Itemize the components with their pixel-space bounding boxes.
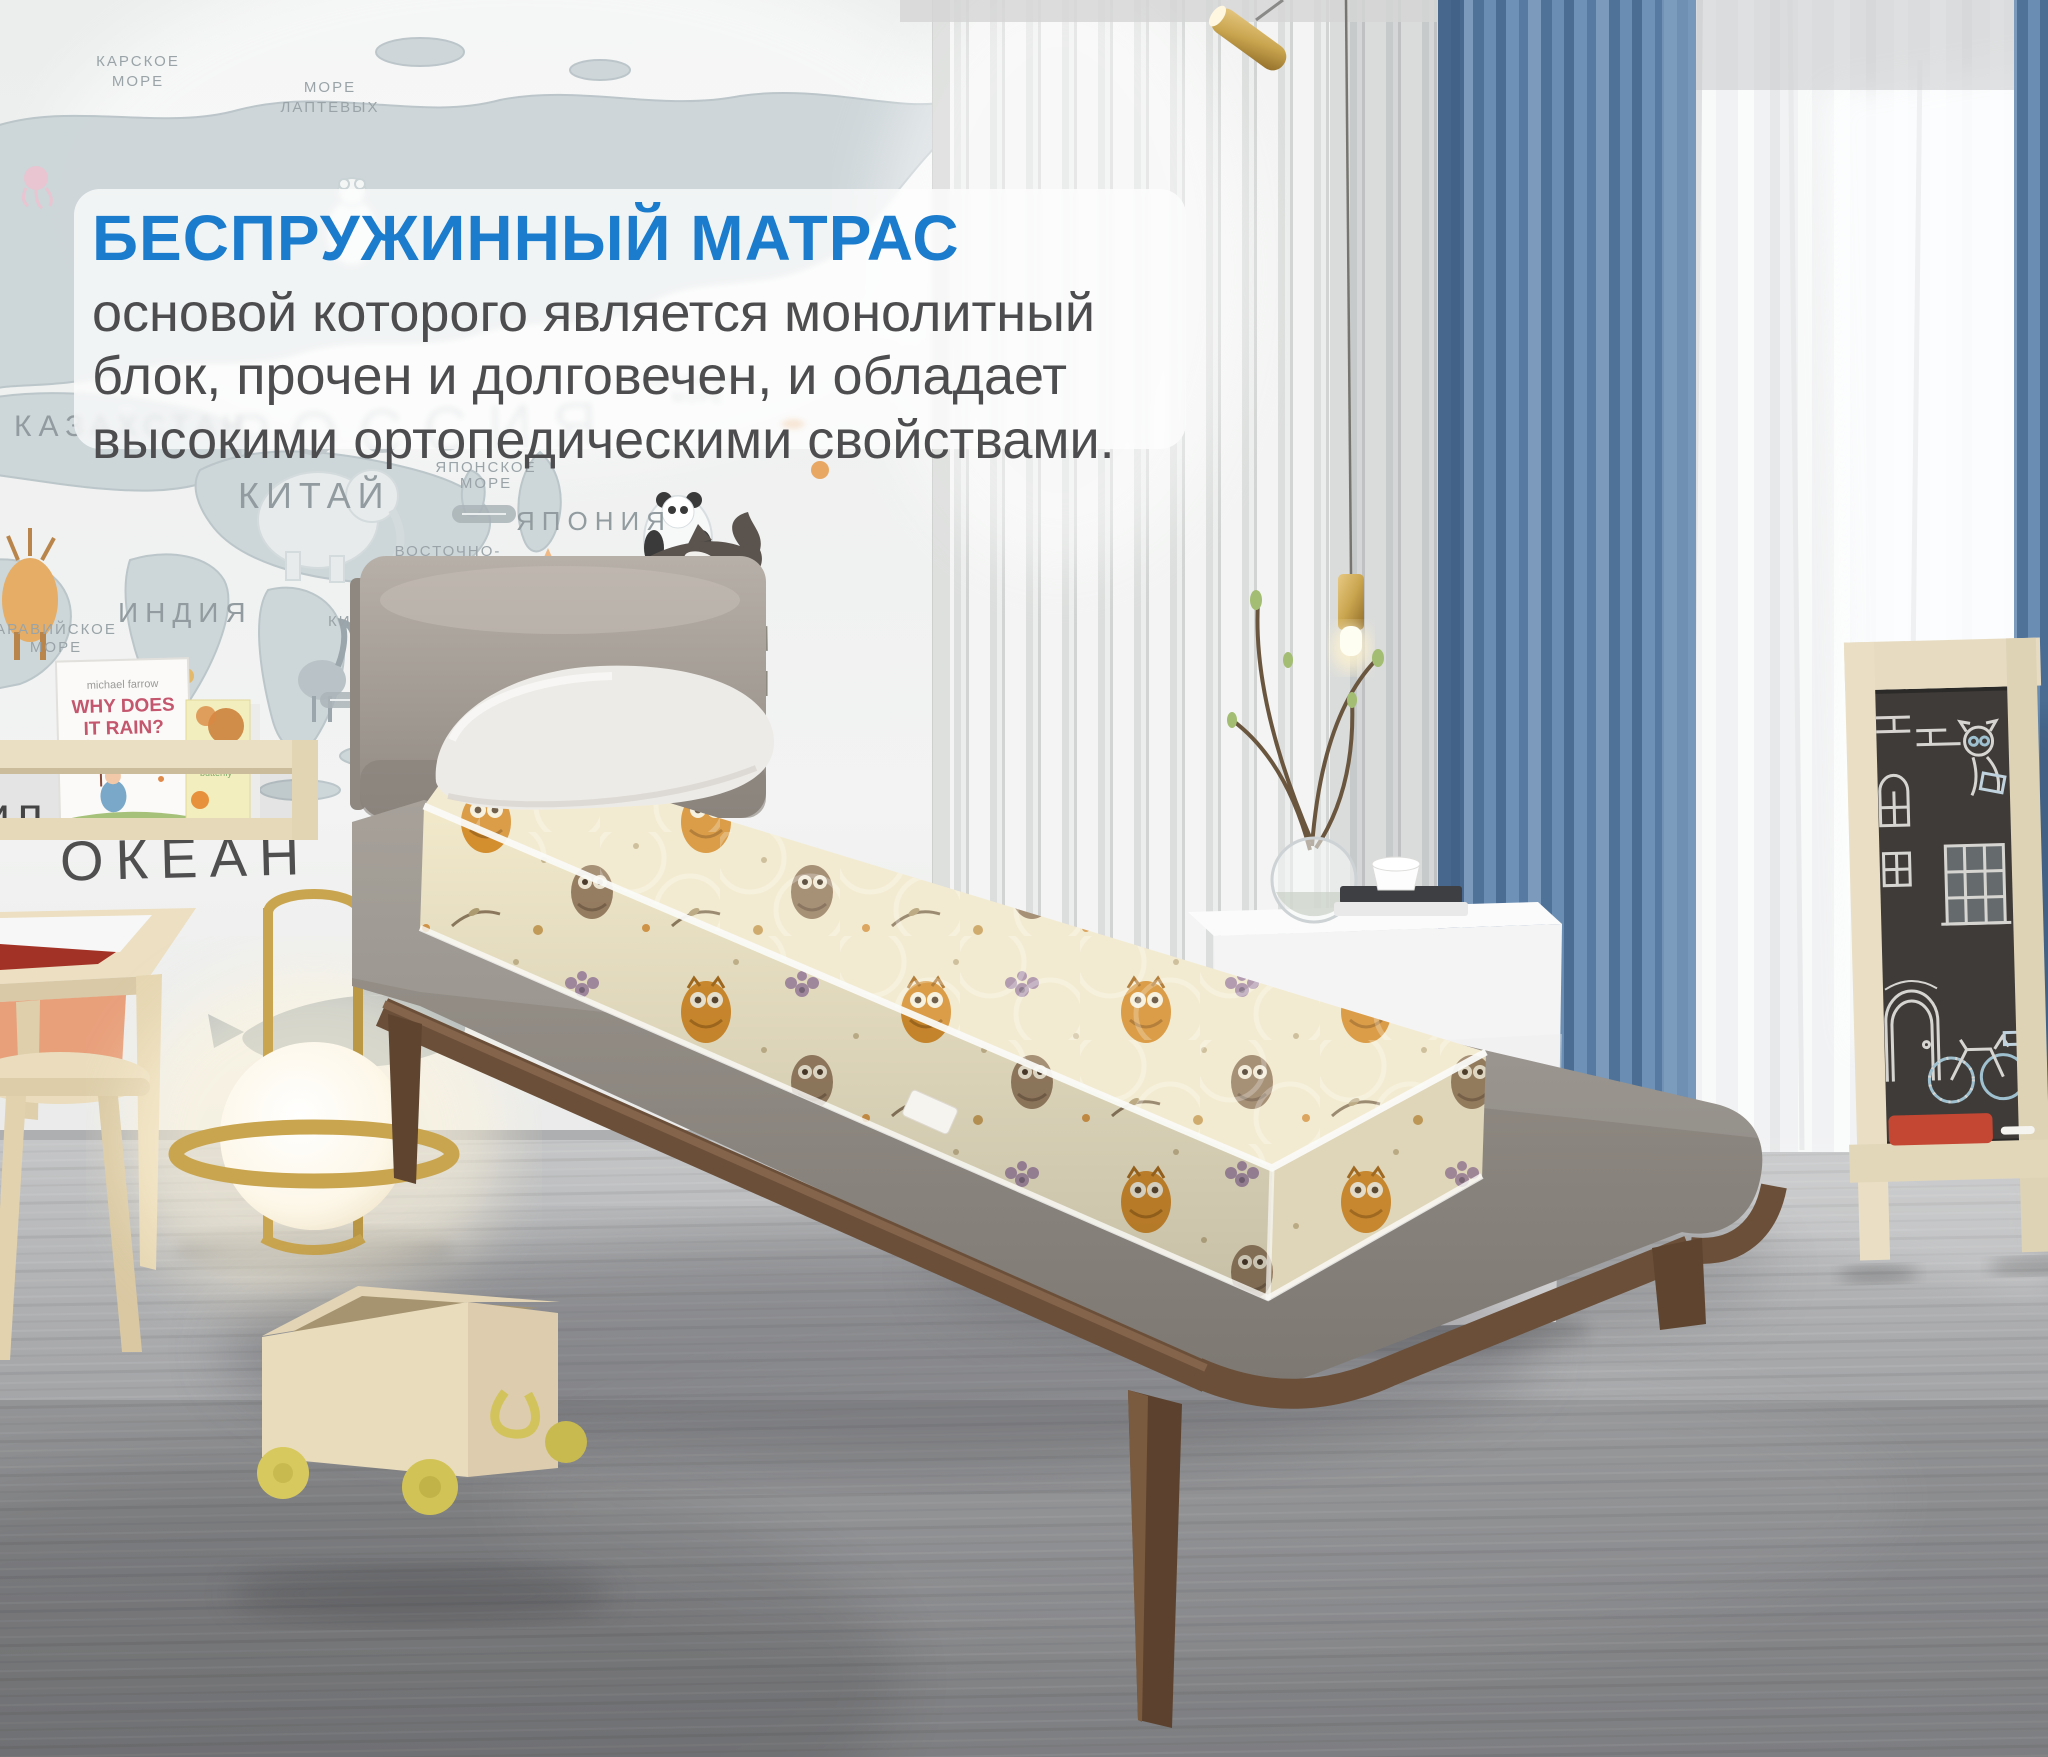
map-label-japan: ЯПОНИЯ xyxy=(516,506,672,536)
shelf-end-cap xyxy=(292,740,318,840)
book-author: michael farrow xyxy=(87,678,159,692)
map-label: КАРСКОЕ xyxy=(96,53,180,70)
toy-cart xyxy=(230,1286,610,1624)
shelf-board xyxy=(0,818,318,840)
map-label-india: ИНДИЯ xyxy=(118,597,253,628)
caption-line: основой которого является монолитный xyxy=(92,282,1142,345)
caption-title: БЕСПРУЖИННЫЙ МАТРАС xyxy=(92,205,1142,272)
book-stack xyxy=(1334,902,1468,916)
butterfly-icon xyxy=(191,791,209,809)
easel-tray xyxy=(1849,1139,2048,1182)
map-label: МОРЕ xyxy=(460,475,512,492)
caption-line: блок, прочен и долговечен, и обладает xyxy=(92,345,1142,408)
book-title-line: WHY DOES xyxy=(71,695,175,719)
red-chalk-box xyxy=(1888,1113,1993,1146)
map-label: ЛАПТЕВЫХ xyxy=(281,99,380,116)
cart-side-panel xyxy=(468,1302,558,1477)
book-title-line: IT RAIN? xyxy=(83,717,164,740)
shelf-front-rail xyxy=(0,740,318,772)
bed-leg xyxy=(1652,1238,1706,1330)
map-label: МОРЕ xyxy=(304,79,356,96)
caption-line: высокими ортопедическими свойствами. xyxy=(92,409,1142,472)
caption-card: БЕСПРУЖИННЫЙ МАТРАС основой которого явл… xyxy=(74,189,1186,449)
cart-wheel xyxy=(545,1421,587,1463)
map-label-china: КИТАЙ xyxy=(238,474,391,516)
chalk-big-window xyxy=(1939,844,2011,924)
map-label: МОРЕ xyxy=(112,73,164,90)
map-label: МОРЕ xyxy=(30,639,82,656)
bedroom-product-photo: КАРСКОЕ МОРЕ МОРЕ ЛАПТЕВЫХ РОССИЯ КАЗАХС… xyxy=(0,0,2048,1757)
chalk-stick xyxy=(2001,1126,2035,1135)
map-label: АРАВИЙСКОЕ xyxy=(0,620,117,638)
